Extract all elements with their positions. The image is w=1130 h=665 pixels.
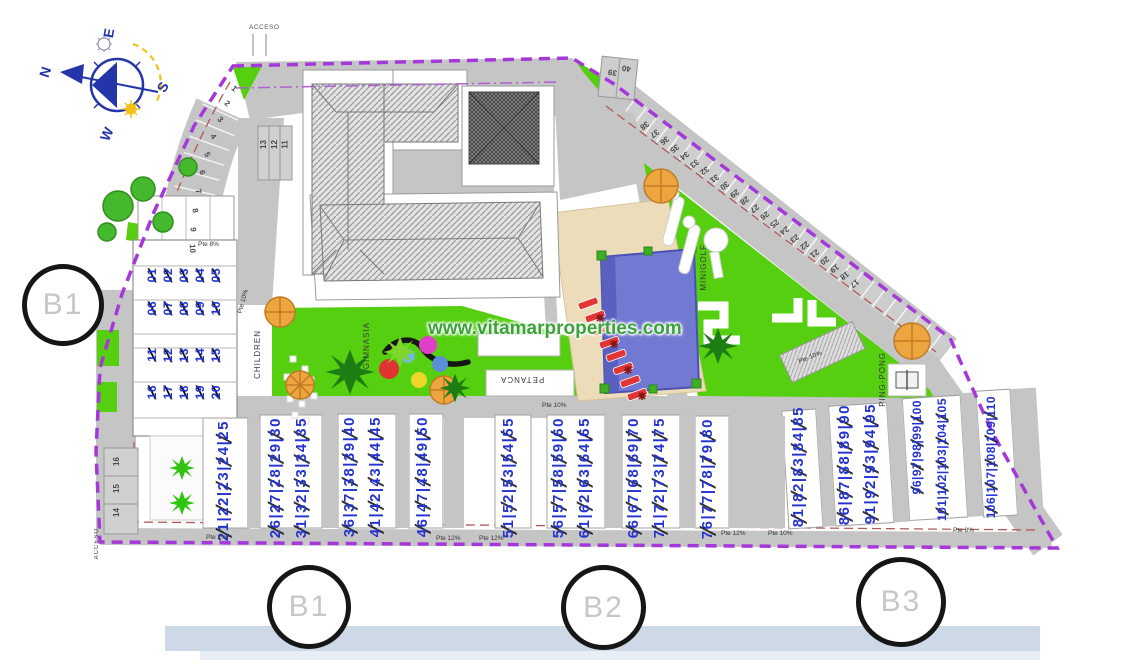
- water-band-light: [200, 651, 1040, 660]
- gimnasia-label: GIMNASIA: [362, 322, 371, 369]
- block-marker-label: B3: [881, 585, 922, 619]
- watermark: www.vitamarproperties.com: [428, 318, 718, 340]
- compass-rose: [60, 36, 161, 118]
- parking-space-number: 10: [188, 244, 197, 253]
- slope-label: Pte 10%: [768, 530, 793, 537]
- garage-building: [133, 196, 237, 436]
- unit-number-group: 106|107|108|109|110: [985, 396, 998, 518]
- garage-unit-number: 16: [146, 385, 159, 399]
- block-marker-b3: B3: [856, 557, 946, 647]
- unit-number-group: 76|77|78|79|80: [700, 418, 716, 539]
- garage-unit-number: 02: [162, 268, 175, 282]
- unit-number-group: 51|52|53|54|55: [501, 417, 517, 538]
- unit-number-group: 81|82|83|84|85: [791, 406, 807, 527]
- parking-space-number: 12: [270, 140, 279, 149]
- block-marker-b1-left: B1: [22, 264, 104, 346]
- garage-unit-number: 03: [178, 268, 191, 282]
- slope-label: Pte 10%: [542, 402, 567, 409]
- ping-pong-table: [888, 364, 926, 396]
- unit-number-group: 36|37|38|39|40: [342, 416, 358, 537]
- unit-number-group: 91|92|93|94|95: [863, 403, 879, 524]
- parking-space-number: 13: [259, 140, 268, 149]
- garage-unit-number: 11: [146, 348, 159, 362]
- garage-unit-number: 12: [162, 348, 175, 362]
- unit-number-group: 26|27|28|29|30: [268, 417, 284, 538]
- acceso-side-label: ACCESO: [94, 528, 100, 559]
- slope-label: Pte 8%: [198, 241, 219, 248]
- slope-label: Pte 12%: [479, 535, 504, 542]
- unit-number-group: 96|97|98|99|100: [911, 400, 924, 494]
- unit-number-group: 71|72|73|74|75: [652, 417, 668, 538]
- garage-unit-number: 01: [146, 268, 159, 282]
- unit-number-group: 86|87|88|89|90: [837, 404, 853, 525]
- garage-unit-number: 07: [162, 301, 175, 315]
- garage-unit-number: 19: [194, 385, 207, 399]
- block-marker-label: B1: [289, 590, 330, 624]
- garage-unit-number: 06: [146, 301, 159, 315]
- slope-label: Pte 12%: [436, 535, 461, 542]
- parking-space-number: 39: [607, 67, 617, 77]
- block-marker-b2: B2: [561, 565, 646, 650]
- garage-unit-number: 15: [210, 348, 223, 362]
- unit-number-group: 66|67|68|69|70: [626, 417, 642, 538]
- unit-number-group: 41|42|43|44|45: [368, 416, 384, 537]
- garage-unit-number: 05: [210, 268, 223, 282]
- parking-space-number: 14: [112, 508, 121, 517]
- unit-number-group: 46|47|48|49|50: [415, 416, 431, 537]
- garage-unit-number: 10: [210, 301, 223, 315]
- parking-space-number: 16: [112, 457, 121, 466]
- garage-unit-number: 09: [194, 301, 207, 315]
- garage-unit-number: 14: [194, 348, 207, 362]
- unit-number-group: 61|62|63|64|65: [577, 417, 593, 538]
- unit-number-group: 21|22|23|24|25: [216, 420, 232, 541]
- slope-label: Pte 8%: [953, 527, 974, 534]
- parking-space-number: 40: [621, 63, 631, 73]
- slope-label: Pte 12%: [721, 530, 746, 537]
- garage-unit-number: 13: [178, 348, 191, 362]
- garage-unit-number: 17: [162, 385, 175, 399]
- parking-space-number: 11: [281, 140, 290, 148]
- unit-number-group: 31|32|33|34|35: [294, 417, 310, 538]
- slope-label: Pte 2%: [206, 534, 227, 541]
- site-plan: www.vitamarproperties.com N E S W ACCESO…: [0, 0, 1130, 665]
- acceso-top-label: ACCESO: [249, 24, 279, 31]
- parking-space-number: 9: [189, 227, 198, 232]
- parking-space-number: 15: [112, 484, 121, 493]
- block-marker-label: B2: [583, 591, 624, 625]
- unit-number-group: 56|57|58|59|60: [551, 417, 567, 538]
- ping-pong-label: PING-PONG: [878, 352, 887, 407]
- block-marker-label: B1: [43, 288, 84, 322]
- garage-unit-number: 04: [194, 268, 207, 282]
- dark-building: [462, 86, 554, 186]
- block-marker-b1: B1: [267, 565, 351, 649]
- unit-number-group: 101|102|103|104|105: [936, 398, 949, 521]
- sun-outline-icon: [96, 36, 112, 52]
- garage-unit-number: 18: [178, 385, 191, 399]
- children-label: CHILDREN: [253, 330, 262, 379]
- garage-unit-number: 08: [178, 301, 191, 315]
- petanca-label: PETANCA: [500, 375, 544, 384]
- minigolf-label: MINIGOLF: [699, 244, 708, 291]
- garage-unit-number: 20: [210, 385, 223, 399]
